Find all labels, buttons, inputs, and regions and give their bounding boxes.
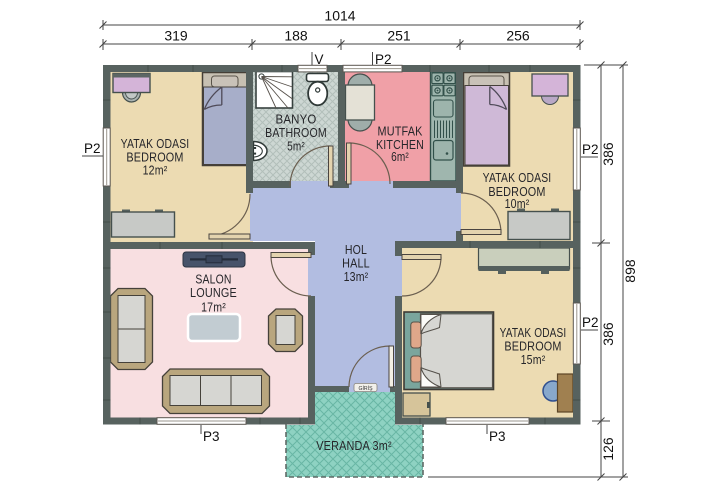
svg-text:256: 256: [506, 28, 530, 44]
svg-text:6m²: 6m²: [391, 150, 409, 164]
svg-text:YATAK ODASI: YATAK ODASI: [500, 326, 567, 340]
svg-text:P2: P2: [582, 142, 599, 157]
svg-text:12m²: 12m²: [143, 164, 168, 178]
svg-text:126: 126: [600, 437, 616, 461]
svg-text:MUTFAK: MUTFAK: [378, 125, 423, 139]
svg-text:251: 251: [387, 28, 411, 44]
svg-text:1014: 1014: [324, 8, 355, 24]
svg-text:BEDROOM: BEDROOM: [126, 151, 183, 165]
svg-text:BATHROOM: BATHROOM: [265, 126, 327, 140]
svg-text:P2: P2: [375, 52, 392, 67]
svg-text:386: 386: [600, 142, 616, 166]
svg-text:YATAK ODASI: YATAK ODASI: [483, 171, 552, 185]
svg-text:HOL: HOL: [345, 243, 367, 257]
svg-text:15m²: 15m²: [521, 353, 546, 367]
svg-text:10m²: 10m²: [505, 197, 530, 211]
svg-text:HALL: HALL: [342, 257, 370, 271]
svg-text:P3: P3: [489, 429, 506, 444]
svg-text:SALON: SALON: [195, 273, 231, 287]
svg-text:GİRİŞ: GİRİŞ: [358, 385, 373, 392]
svg-text:5m²: 5m²: [287, 140, 305, 154]
svg-text:386: 386: [600, 322, 616, 346]
svg-text:V: V: [315, 52, 324, 67]
svg-text:P2: P2: [84, 141, 101, 156]
svg-text:BEDROOM: BEDROOM: [504, 340, 561, 354]
svg-text:P2: P2: [582, 315, 599, 330]
svg-text:17m²: 17m²: [201, 301, 226, 315]
svg-text:319: 319: [164, 28, 188, 44]
svg-text:YATAK ODASI: YATAK ODASI: [121, 137, 190, 151]
svg-text:13m²: 13m²: [344, 270, 369, 284]
svg-text:BANYO: BANYO: [276, 113, 317, 127]
svg-text:P3: P3: [203, 429, 220, 444]
svg-text:VERANDA 3m²: VERANDA 3m²: [316, 439, 392, 453]
svg-text:188: 188: [284, 28, 308, 44]
svg-text:LOUNGE: LOUNGE: [190, 286, 237, 300]
svg-text:898: 898: [622, 259, 638, 283]
